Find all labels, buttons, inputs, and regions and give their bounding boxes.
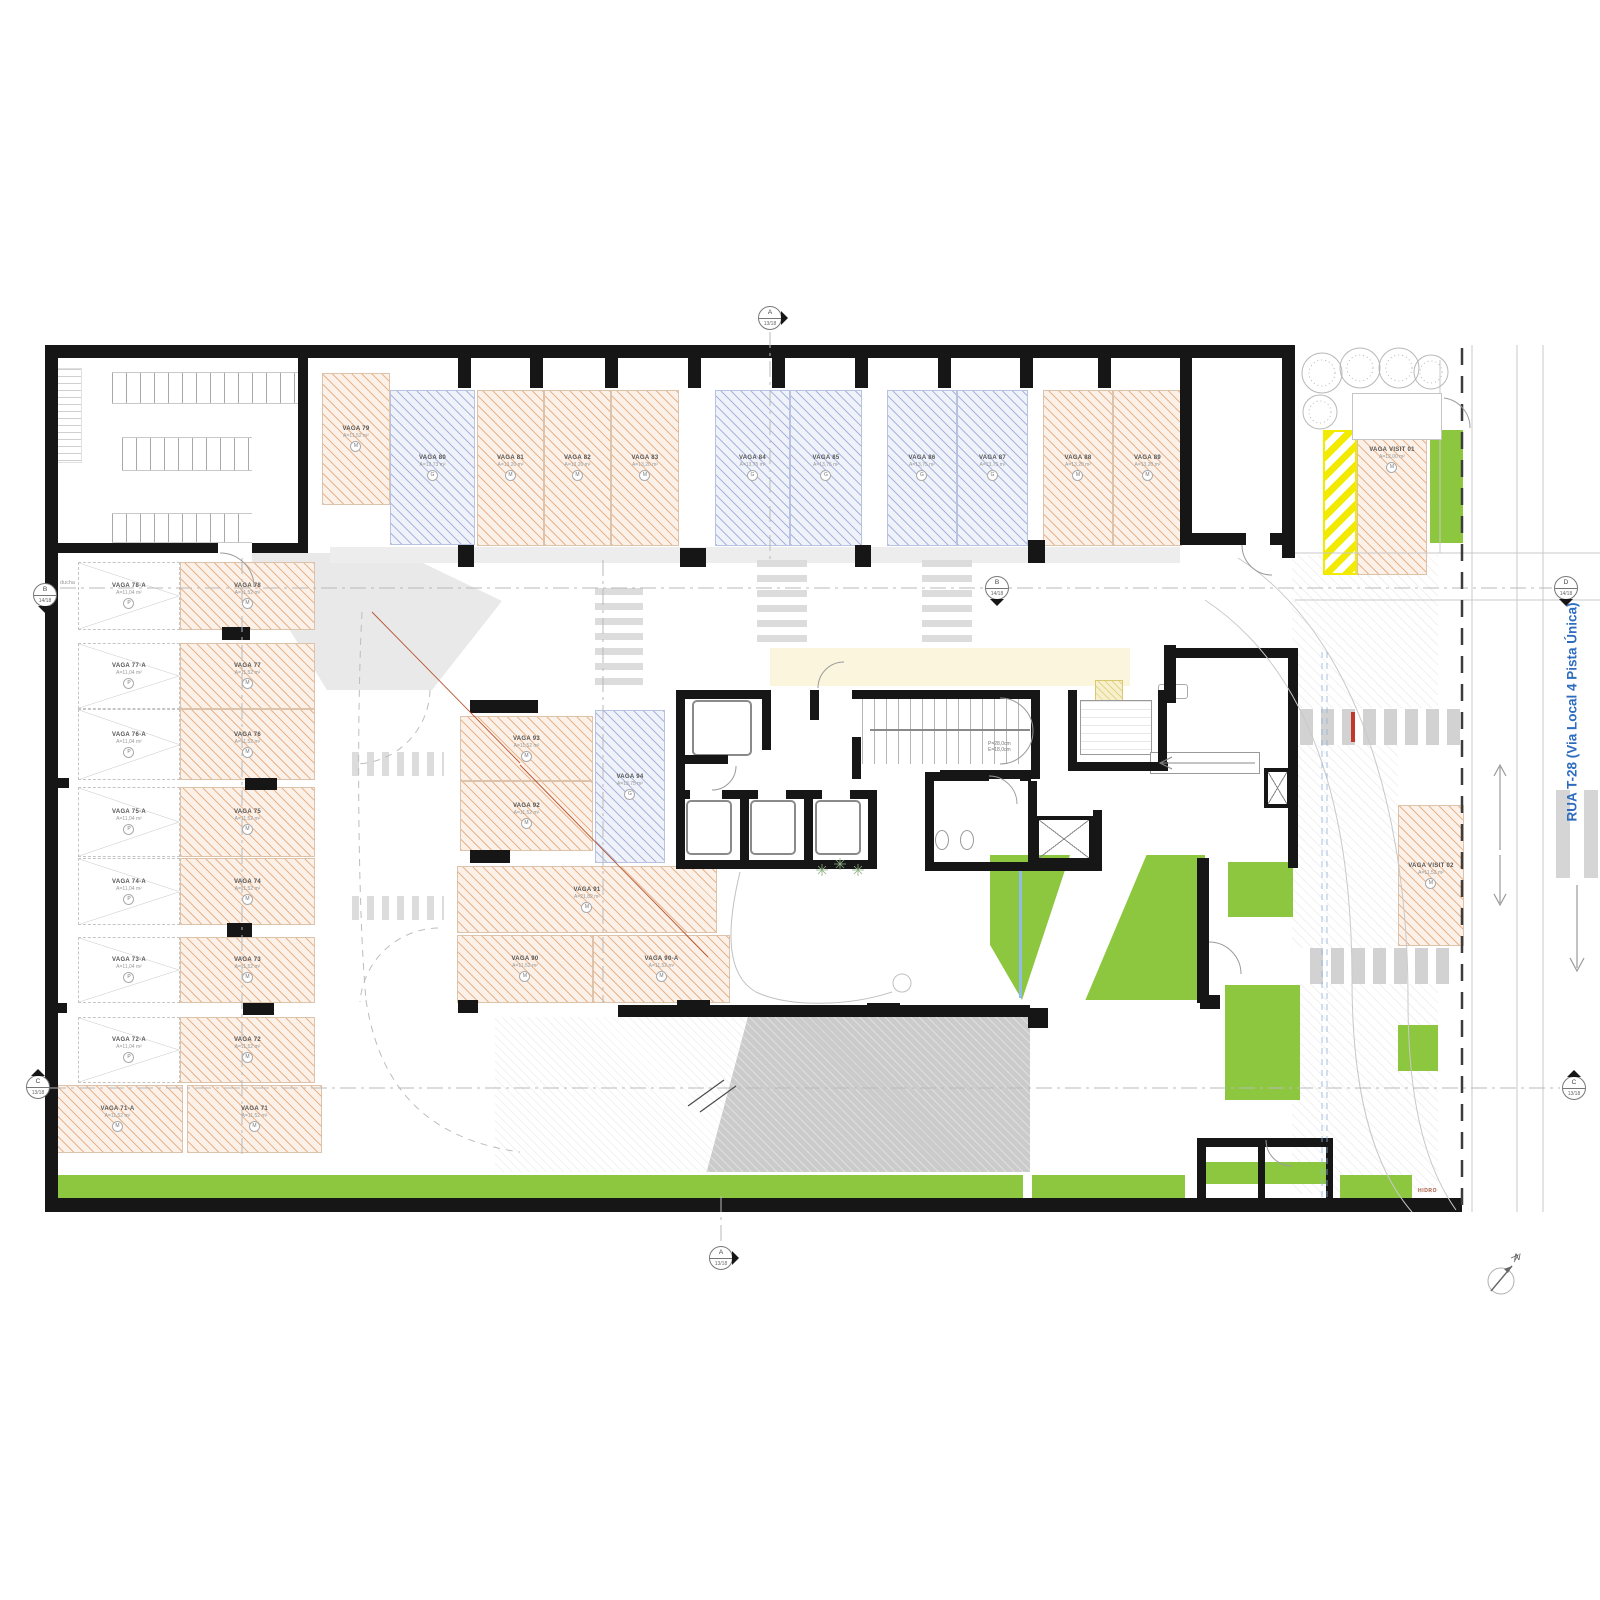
parking-space-label: VAGA 71A=11,52 m²M xyxy=(241,1106,268,1132)
wall-segment xyxy=(740,799,749,869)
bike-rack-row xyxy=(112,513,252,543)
landscaped-area xyxy=(1225,985,1300,1100)
parking-space-label: VAGA 76-AA=11,04 m²P xyxy=(112,732,146,758)
no-parking-hatch xyxy=(1323,430,1357,575)
wall-segment xyxy=(45,543,218,553)
section-marker-triangle xyxy=(990,599,1004,613)
shaft-hatch xyxy=(1095,680,1123,702)
parking-space-VISIT02: VAGA VISIT 02A=11,52 m²M xyxy=(1398,805,1464,946)
parking-space-label: VAGA 83A=13,20 m²M xyxy=(631,455,658,481)
crosswalk-bar xyxy=(1447,709,1460,745)
parking-space-80: VAGA 80A=12,73 m²G xyxy=(390,390,475,545)
parking-space-label: VAGA 79A=11,52 m²M xyxy=(342,426,369,452)
wall-segment xyxy=(1180,358,1192,545)
parking-space-81: VAGA 81A=13,20 m²M xyxy=(477,390,544,546)
parking-space-73: VAGA 73A=11,52 m²M xyxy=(180,937,315,1003)
wall-segment xyxy=(925,772,934,871)
landscaped-area xyxy=(1075,855,1205,1000)
shaft-x xyxy=(1035,816,1093,862)
parking-space-label: VAGA 86A=13,75 m²G xyxy=(908,455,935,481)
wall-segment xyxy=(925,862,1095,871)
column xyxy=(677,1000,710,1012)
wall-segment xyxy=(868,790,877,869)
parking-space-label: VAGA 73-AA=11,04 m²P xyxy=(112,957,146,983)
wall-segment xyxy=(676,790,690,799)
ramp-upper xyxy=(495,1017,748,1172)
parking-space-71: VAGA 71A=11,52 m²M xyxy=(187,1085,322,1153)
wall-segment xyxy=(804,799,813,869)
column xyxy=(938,358,951,388)
pedestrian-crossing xyxy=(352,896,444,920)
wall-segment xyxy=(676,860,877,869)
section-marker-triangle xyxy=(1567,1063,1581,1077)
column xyxy=(530,358,543,388)
column xyxy=(470,850,510,863)
section-marker-triangle xyxy=(1559,599,1573,613)
column xyxy=(227,923,252,937)
wall-segment xyxy=(1197,1138,1206,1200)
wall-segment xyxy=(1258,1138,1265,1198)
landscaped-area xyxy=(1228,862,1293,917)
wall-segment xyxy=(1326,1138,1333,1198)
bike-rack-row xyxy=(112,372,298,404)
crosswalk-bar xyxy=(1394,948,1407,984)
column xyxy=(855,545,871,567)
parking-space-label: VAGA 82A=13,20 m²M xyxy=(564,455,591,481)
planter xyxy=(1352,393,1442,440)
section-marker-A: A13/18 xyxy=(709,1246,733,1270)
parking-space-label: VAGA 92A=11,52 m²M xyxy=(513,803,540,829)
pedestrian-crossing xyxy=(352,752,444,776)
crosswalk-bar xyxy=(1331,948,1344,984)
wall-segment xyxy=(1270,533,1295,545)
section-marker-triangle xyxy=(31,1062,45,1076)
crosswalk-bar xyxy=(1321,709,1334,745)
column xyxy=(1020,358,1033,388)
column xyxy=(855,358,868,388)
parking-space-72A: VAGA 72-AA=11,04 m²P xyxy=(78,1017,180,1083)
parking-space-label: VAGA 90A=11,52 m²M xyxy=(511,956,538,982)
column xyxy=(1098,358,1111,388)
parking-space-label: VAGA 75-AA=11,04 m²P xyxy=(112,809,146,835)
parking-space-91: VAGA 91A=21,82 m²M xyxy=(457,866,717,933)
stair-treads xyxy=(862,698,1030,764)
parking-space-label: VAGA 72-AA=11,04 m²P xyxy=(112,1037,146,1063)
crosswalk-bar xyxy=(1436,948,1449,984)
hydrometer-label: HIDRO xyxy=(1418,1188,1437,1194)
column xyxy=(243,1003,274,1015)
crosswalk-bar xyxy=(1415,948,1428,984)
pedestrian-crossing xyxy=(757,560,807,642)
wall-segment xyxy=(1282,345,1295,558)
parking-space-82: VAGA 82A=13,20 m²M xyxy=(544,390,611,546)
column xyxy=(458,545,474,567)
landscaped-area xyxy=(1032,1175,1185,1198)
elevator-car xyxy=(686,800,732,855)
parking-space-73A: VAGA 73-AA=11,04 m²P xyxy=(78,937,180,1003)
parking-space-label: VAGA 74-AA=11,04 m²P xyxy=(112,879,146,905)
parking-space-label: VAGA 89A=13,20 m²M xyxy=(1134,455,1161,481)
wall-segment xyxy=(1068,690,1077,770)
column xyxy=(458,358,471,388)
column xyxy=(470,700,538,713)
wall-segment xyxy=(45,345,1295,358)
parking-space-label: VAGA VISIT 01A=12,00 m²M xyxy=(1369,447,1415,473)
toilet-fixture xyxy=(935,830,949,850)
parking-space-VISIT01: VAGA VISIT 01A=12,00 m²M xyxy=(1357,430,1427,575)
section-marker-A: A13/18 xyxy=(758,306,782,330)
sidewalk-hatch xyxy=(1292,555,1438,708)
wall-segment xyxy=(1180,533,1246,545)
crosswalk-bar xyxy=(1352,948,1365,984)
column xyxy=(458,1000,478,1013)
hydrant-mark xyxy=(1351,712,1355,742)
crosswalk-bar xyxy=(1405,709,1418,745)
stair-dimensions-note: P=28,0cm E=18,0cm xyxy=(988,741,1011,753)
wall-segment xyxy=(298,500,308,553)
parking-space-label: VAGA 90-AA=11,52 m²M xyxy=(644,956,678,982)
parking-space-label: VAGA 75A=11,52 m²M xyxy=(234,809,261,835)
parking-space-90: VAGA 90A=11,52 m²M xyxy=(457,935,593,1003)
parking-space-86: VAGA 86A=13,75 m²G xyxy=(887,390,957,546)
counter xyxy=(1080,700,1152,755)
section-marker-C: C13/18 xyxy=(1562,1076,1586,1100)
parking-space-label: VAGA 74A=11,52 m²M xyxy=(234,879,261,905)
parking-space-77: VAGA 77A=11,52 m²M xyxy=(180,643,315,709)
wall-segment xyxy=(810,690,819,720)
landscaped-area xyxy=(990,855,1070,1000)
pedestrian-crossing xyxy=(595,588,643,688)
parking-space-label: VAGA 78-AA=11,04 m²P xyxy=(112,583,146,609)
landscaped-area xyxy=(1430,430,1463,543)
parking-space-74A: VAGA 74-AA=11,04 m²P xyxy=(78,858,180,925)
shaft-x xyxy=(1264,768,1291,808)
parking-space-78: VAGA 78A=11,52 m²M xyxy=(180,562,315,630)
section-marker-triangle xyxy=(781,311,795,325)
parking-space-84: VAGA 84A=13,75 m²G xyxy=(715,390,790,546)
parking-space-94: VAGA 94A=13,75 m²G xyxy=(595,710,665,863)
wall-segment xyxy=(1093,810,1102,871)
wall-segment xyxy=(1288,648,1298,868)
wall-segment xyxy=(1197,858,1209,1003)
wall-segment xyxy=(676,690,771,699)
parking-space-87: VAGA 87A=13,75 m²G xyxy=(957,390,1028,546)
crosswalk-bar xyxy=(1373,948,1386,984)
parking-space-label: VAGA 78A=11,52 m²M xyxy=(234,583,261,609)
wall-segment xyxy=(1031,690,1040,778)
parking-space-label: VAGA 80A=12,73 m²G xyxy=(419,455,446,481)
sidewalk-hatch xyxy=(1292,745,1398,948)
section-marker-C: C13/18 xyxy=(26,1075,50,1099)
floor-plan: RUA T-28 (Via Local 4 Pista Única) ducha… xyxy=(0,0,1600,1600)
wall-segment xyxy=(45,1198,1462,1212)
section-marker-B: B14/18 xyxy=(33,583,57,607)
wall-segment xyxy=(676,690,685,869)
parking-space-label: VAGA 84A=13,75 m²G xyxy=(739,455,766,481)
elevator-car xyxy=(815,800,861,855)
parking-space-label: VAGA 77A=11,52 m²M xyxy=(234,663,261,689)
crosswalk-bar xyxy=(1300,709,1313,745)
column xyxy=(222,627,250,640)
landscaped-area xyxy=(1340,1175,1412,1198)
parking-space-label: VAGA 85A=13,75 m²G xyxy=(812,455,839,481)
parking-space-78A: VAGA 78-AA=11,04 m²P xyxy=(78,562,180,630)
section-marker-triangle xyxy=(38,606,52,620)
parking-space-92: VAGA 92A=11,52 m²M xyxy=(460,781,593,851)
parking-space-76A: VAGA 76-AA=11,04 m²P xyxy=(78,709,180,780)
stair-tread-note: E=18,0cm xyxy=(988,747,1011,753)
parking-space-75: VAGA 75A=11,52 m²M xyxy=(180,787,315,857)
parking-space-label: VAGA 72A=11,52 m²M xyxy=(234,1037,261,1063)
wall-segment xyxy=(722,790,758,799)
wall-segment xyxy=(852,690,1040,699)
road-marking xyxy=(1584,790,1598,878)
north-label: N xyxy=(1514,1252,1521,1262)
column xyxy=(1200,995,1220,1009)
parking-space-71A: VAGA 71-AA=11,52 m²M xyxy=(52,1085,183,1153)
parking-space-label: VAGA 91A=21,82 m²M xyxy=(573,887,600,913)
parking-space-label: VAGA 93A=11,52 m²M xyxy=(513,736,540,762)
wall-segment xyxy=(1020,772,1031,781)
wall-segment xyxy=(1068,762,1168,771)
parking-space-85: VAGA 85A=13,75 m²G xyxy=(790,390,862,546)
elevator-car xyxy=(692,700,752,756)
parking-space-label: VAGA 76A=11,52 m²M xyxy=(234,732,261,758)
landscaped-area xyxy=(1205,1162,1330,1184)
shower-room-label: ducha xyxy=(60,580,75,586)
column xyxy=(1028,540,1045,563)
parking-space-74: VAGA 74A=11,52 m²M xyxy=(180,858,315,925)
parking-space-90A: VAGA 90-AA=11,52 m²M xyxy=(593,935,730,1003)
parking-space-label: VAGA 77-AA=11,04 m²P xyxy=(112,663,146,689)
wall-segment xyxy=(676,755,728,764)
glazing xyxy=(1019,868,1022,998)
wall-segment xyxy=(1028,781,1037,871)
corridor-tint xyxy=(770,648,1130,686)
parking-space-93: VAGA 93A=11,52 m²M xyxy=(460,716,593,781)
stair-handrail xyxy=(870,729,1030,731)
column xyxy=(45,778,69,788)
wall-segment xyxy=(925,772,989,781)
wall-segment xyxy=(1164,648,1197,658)
column xyxy=(1028,1008,1048,1028)
parking-space-88: VAGA 88A=13,20 m²M xyxy=(1043,390,1113,546)
column xyxy=(688,358,701,388)
parking-space-76: VAGA 76A=11,52 m²M xyxy=(180,709,315,780)
section-marker-triangle xyxy=(732,1251,746,1265)
crosswalk-bar xyxy=(1426,709,1439,745)
parking-space-label: VAGA 81A=13,20 m²M xyxy=(497,455,524,481)
parking-space-77A: VAGA 77-AA=11,04 m²P xyxy=(78,643,180,709)
parking-space-label: VAGA 87A=13,75 m²G xyxy=(979,455,1006,481)
column xyxy=(45,1003,67,1013)
section-marker-B: B14/18 xyxy=(985,576,1009,600)
wall-segment xyxy=(298,358,308,508)
wall-segment xyxy=(1197,648,1295,658)
wall-segment xyxy=(786,790,822,799)
parking-space-label: VAGA 73A=11,52 m²M xyxy=(234,957,261,983)
parking-space-79: VAGA 79A=11,52 m²M xyxy=(322,373,390,505)
toilet-fixture xyxy=(960,830,974,850)
column xyxy=(772,358,785,388)
crosswalk-bar xyxy=(1363,709,1376,745)
parking-space-89: VAGA 89A=13,20 m²M xyxy=(1113,390,1182,546)
parking-space-72: VAGA 72A=11,52 m²M xyxy=(180,1017,315,1083)
parking-space-75A: VAGA 75-AA=11,04 m²P xyxy=(78,787,180,857)
column xyxy=(605,358,618,388)
wall-segment xyxy=(852,737,861,779)
column xyxy=(245,778,277,790)
lobby-furniture xyxy=(731,872,911,1003)
column xyxy=(680,548,706,567)
crosswalk-bar xyxy=(1384,709,1397,745)
pedestrian-crossing xyxy=(922,560,972,645)
parking-space-label: VAGA 94A=13,75 m²G xyxy=(616,774,643,800)
landscaped-area xyxy=(58,1175,1023,1198)
parking-space-label: VAGA VISIT 02A=11,52 m²M xyxy=(1408,863,1454,889)
parking-space-83: VAGA 83A=13,20 m²M xyxy=(611,390,679,546)
column xyxy=(867,1003,900,1015)
ramp-lower xyxy=(700,1017,1030,1172)
landscaped-area xyxy=(1398,1025,1438,1071)
section-marker-D: D14/18 xyxy=(1554,576,1578,600)
crosswalk-bar xyxy=(1310,948,1323,984)
wall-segment xyxy=(762,690,771,750)
parking-space-label: VAGA 71-AA=11,52 m²M xyxy=(100,1106,134,1132)
elevator-car xyxy=(750,800,796,855)
bike-rack-row xyxy=(122,437,252,471)
street-name-label: RUA T-28 (Via Local 4 Pista Única) xyxy=(1565,602,1580,821)
parking-space-label: VAGA 88A=13,20 m²M xyxy=(1064,455,1091,481)
